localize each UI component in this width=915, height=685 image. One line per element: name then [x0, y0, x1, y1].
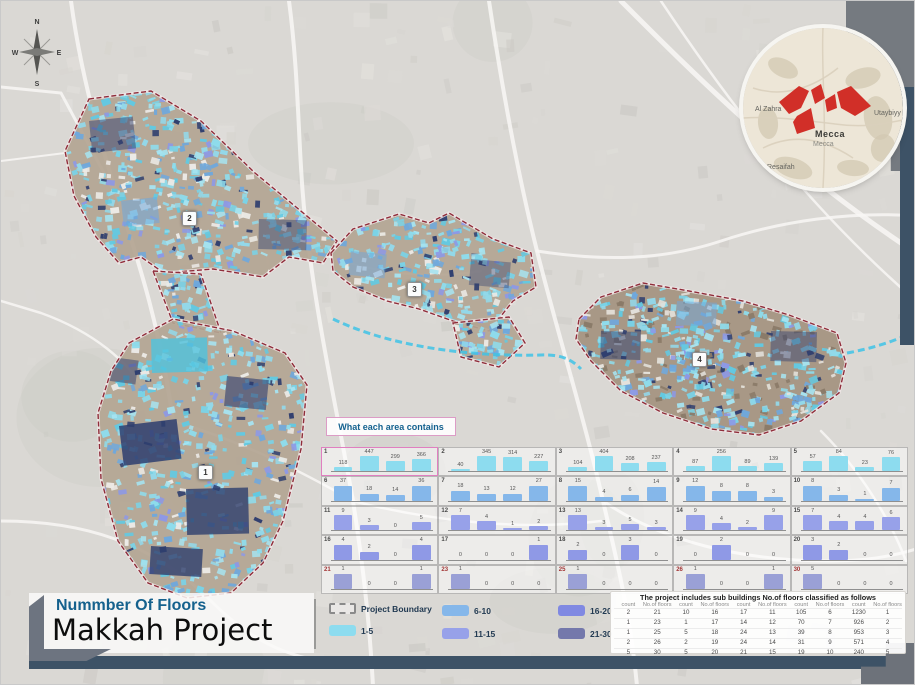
legend-item-11-15: 11-15	[442, 628, 495, 639]
summary-cell: 1	[614, 619, 643, 629]
summary-cell: 5	[873, 649, 902, 658]
summary-cell: 15	[758, 649, 787, 658]
summary-table-title: The project includes sub buildings No.of…	[614, 593, 902, 602]
legend-swatch	[558, 628, 585, 639]
floors-cell-label: 21	[324, 567, 331, 573]
summary-cell: 25	[643, 629, 672, 639]
area-bar: 12	[683, 479, 707, 501]
compass-w: W	[12, 50, 19, 57]
area-bar: 0	[644, 553, 668, 560]
area-bar: 18	[357, 487, 381, 501]
summary-cell: 8	[816, 629, 845, 639]
area-bar: 76	[879, 451, 903, 472]
area-bar: 89	[735, 460, 759, 472]
legend: Project Boundary 1-56-1011-1516-2021-30	[329, 601, 607, 651]
area-bar: 6	[879, 511, 903, 531]
area-bar: 14	[383, 488, 407, 501]
area-bar: 87	[683, 460, 707, 472]
floors-cell-label: 9	[676, 478, 679, 484]
map-poster: N S W E Al Zahra Mecca Mecca Resaifah Ut…	[0, 0, 915, 685]
title-block: Nummber Of Floors Makkah Project	[29, 593, 314, 653]
area-bar: 366	[409, 453, 433, 472]
area-bar: 2	[357, 545, 381, 560]
floors-cell-19: 190200	[673, 535, 790, 564]
floors-cell-6: 637181436	[321, 476, 438, 505]
floors-cell-30: 305000	[791, 565, 908, 594]
area-bar: 0	[644, 582, 668, 589]
legend-label: 16-20	[590, 606, 612, 616]
floors-cell-2: 240345314227	[438, 447, 555, 476]
area-bar: 0	[475, 582, 499, 589]
summary-col-header: No.of floors	[873, 602, 902, 609]
area-bar: 345	[475, 450, 499, 472]
area-bar: 104	[566, 461, 590, 472]
area-bar: 0	[357, 582, 381, 589]
area-bar: 0	[383, 582, 407, 589]
legend-item-21-30: 21-30	[558, 628, 612, 639]
area-bar: 40	[448, 463, 472, 472]
area-bar: 0	[383, 553, 407, 560]
summary-cell: 571	[844, 639, 873, 649]
area-bar: 3	[592, 521, 616, 531]
floors-cell-label: 18	[559, 537, 566, 543]
area-bar: 1	[331, 567, 355, 589]
inset-label-utaybiyyah: Utaybiyy	[874, 110, 901, 117]
summary-cell: 18	[700, 629, 729, 639]
floors-cell-15: 157446	[791, 506, 908, 535]
summary-cell: 16	[700, 609, 729, 619]
summary-cell: 20	[700, 649, 729, 658]
area-bar: 7	[801, 509, 825, 531]
legend-swatch	[329, 625, 356, 636]
floors-cell-label: 7	[441, 478, 444, 484]
area-bar: 139	[762, 457, 786, 472]
summary-cell: 17	[700, 619, 729, 629]
inset-label-al-zahra: Al Zahra	[755, 106, 781, 113]
floors-cell-label: 14	[676, 508, 683, 514]
compass-n: N	[34, 19, 39, 26]
summary-cell: 14	[729, 619, 758, 629]
floors-cell-label: 10	[794, 478, 801, 484]
floors-cell-8: 8154614	[556, 476, 673, 505]
floors-cell-17: 170001	[438, 535, 555, 564]
compass-needle-ew	[19, 48, 55, 56]
area-bar: 4	[853, 515, 877, 531]
floors-cell-label: 4	[676, 449, 679, 455]
area-bar: 2	[566, 543, 590, 560]
area-bar: 36	[409, 479, 433, 501]
area-bar: 2	[735, 521, 759, 531]
summary-col-header: No.of floors	[643, 602, 672, 609]
area-bar: 23	[853, 461, 877, 472]
area-bar: 0	[618, 582, 642, 589]
summary-table-panel: The project includes sub buildings No.of…	[610, 591, 906, 654]
area-bar: 0	[383, 524, 407, 531]
area-bar: 4	[709, 517, 733, 531]
area-bar: 1	[683, 567, 707, 589]
legend-label: 11-15	[474, 629, 495, 639]
summary-cell: 1230	[844, 609, 873, 619]
summary-cell: 5	[672, 629, 701, 639]
summary-row: 530520211519102405	[614, 649, 902, 658]
floors-cell-label: 12	[441, 508, 448, 514]
area-bar: 1	[566, 567, 590, 589]
floors-cell-16: 164204	[321, 535, 438, 564]
floors-cell-5: 557842376	[791, 447, 908, 476]
summary-cell: 1	[873, 609, 902, 619]
summary-cell: 19	[700, 639, 729, 649]
summary-cell: 23	[643, 619, 672, 629]
area-bar: 0	[592, 553, 616, 560]
summary-cell: 10	[672, 609, 701, 619]
inset-label-resaifah: Resaifah	[767, 164, 795, 171]
area-bar: 0	[475, 553, 499, 560]
floors-cell-9: 912883	[673, 476, 790, 505]
legend-item-16-20: 16-20	[558, 605, 612, 616]
area-bar: 4	[409, 538, 433, 560]
summary-cell: 953	[844, 629, 873, 639]
area-bar: 57	[801, 455, 825, 472]
area-bar: 2	[827, 543, 851, 560]
floors-cell-25: 251000	[556, 565, 673, 594]
summary-row: 22110161711105612301	[614, 609, 902, 619]
summary-cell: 5	[614, 649, 643, 658]
area-bar: 13	[475, 487, 499, 501]
area-bar: 0	[501, 553, 525, 560]
summary-cell: 21	[643, 609, 672, 619]
legend-swatch	[442, 605, 469, 616]
summary-cell: 30	[643, 649, 672, 658]
floors-cell-label: 5	[794, 449, 797, 455]
legend-label: 6-10	[474, 606, 491, 616]
floors-cell-label: 17	[441, 537, 448, 543]
summary-cell: 14	[758, 639, 787, 649]
area-bar: 1	[501, 522, 525, 531]
floors-chart-grid: 1118447299366240345314227310440420823748…	[321, 447, 908, 594]
area-bar: 0	[827, 582, 851, 589]
floors-cell-11: 119305	[321, 506, 438, 535]
area-bar: 8	[801, 479, 825, 501]
floors-cell-label: 6	[324, 478, 327, 484]
area-bar: 18	[448, 484, 472, 501]
floors-cell-label: 3	[559, 449, 562, 455]
summary-cell: 105	[787, 609, 816, 619]
locator-inset-map: Al Zahra Mecca Mecca Resaifah Utaybiyy	[743, 28, 903, 188]
summary-cell: 26	[643, 639, 672, 649]
summary-cell: 1	[614, 629, 643, 639]
legend-label: 21-30	[590, 629, 612, 639]
area-bar: 4	[331, 538, 355, 560]
poster-title: Makkah Project	[52, 613, 272, 647]
floors-cell-label: 23	[441, 567, 448, 573]
floors-cell-label: 19	[676, 537, 683, 543]
area-bar: 15	[566, 479, 590, 501]
summary-cell: 6	[816, 609, 845, 619]
summary-cell: 12	[758, 619, 787, 629]
area-bar: 1	[853, 492, 877, 501]
area-bar: 256	[709, 450, 733, 472]
legend-item-6-10: 6-10	[442, 605, 491, 616]
floors-cell-label: 11	[324, 508, 330, 514]
floors-cell-label: 26	[676, 567, 683, 573]
summary-cell: 19	[787, 649, 816, 658]
summary-col-header: No.of floors	[758, 602, 787, 609]
area-bar: 3	[357, 519, 381, 531]
area-bar: 0	[592, 582, 616, 589]
area-bar: 0	[709, 582, 733, 589]
summary-cell: 2	[614, 609, 643, 619]
area-badge-3: 3	[407, 282, 422, 297]
area-bar: 9	[762, 509, 786, 531]
frame-bar-right	[900, 87, 914, 345]
area-bar: 6	[618, 488, 642, 501]
area-bar: 8	[709, 484, 733, 501]
summary-cell: 2	[672, 639, 701, 649]
area-bar: 3	[618, 538, 642, 560]
area-bar: 447	[357, 450, 381, 472]
summary-cell: 7	[816, 619, 845, 629]
summary-cell: 24	[729, 629, 758, 639]
charts-panel-heading: What each area contains	[326, 417, 456, 436]
summary-cell: 21	[729, 649, 758, 658]
area-bar: 3	[762, 490, 786, 501]
area-bar: 404	[592, 450, 616, 472]
area-bar: 314	[501, 451, 525, 472]
floors-cell-10: 108317	[791, 476, 908, 505]
area-bar: 37	[331, 479, 355, 501]
area-bar: 0	[501, 582, 525, 589]
area-bar: 5	[618, 518, 642, 531]
area-bar: 3	[827, 488, 851, 501]
floors-cell-label: 15	[794, 508, 801, 514]
area-bar: 0	[527, 582, 551, 589]
floors-cell-label: 16	[324, 537, 331, 543]
summary-row: 22621924143195714	[614, 639, 902, 649]
area-bar: 3	[801, 538, 825, 560]
area-bar: 3	[644, 521, 668, 531]
summary-cell: 9	[816, 639, 845, 649]
summary-table: countNo.of floorscountNo.of floorscountN…	[614, 602, 902, 658]
legend-divider	[314, 599, 316, 649]
area-bar: 0	[735, 582, 759, 589]
area-bar: 4	[827, 515, 851, 531]
floors-cell-7: 718131227	[438, 476, 555, 505]
legend-label: 1-5	[361, 626, 373, 636]
area-badge-4: 4	[692, 352, 707, 367]
inset-label-mecca-alt: Mecca	[813, 141, 834, 148]
floors-cell-label: 8	[559, 478, 562, 484]
floors-cell-4: 48725689139	[673, 447, 790, 476]
legend-label: Project Boundary	[361, 604, 432, 614]
floors-cell-1: 1118447299366	[321, 447, 438, 476]
summary-cell: 11	[758, 609, 787, 619]
area-bar: 208	[618, 457, 642, 472]
area-bar: 299	[383, 455, 407, 472]
summary-cell: 3	[873, 629, 902, 639]
legend-swatch	[442, 628, 469, 639]
floors-cell-20: 203200	[791, 535, 908, 564]
summary-col-header: No.of floors	[700, 602, 729, 609]
compass-rose: N S W E	[11, 13, 63, 89]
area-bar: 7	[448, 509, 472, 531]
area-bar: 5	[409, 516, 433, 531]
legend-swatch	[558, 605, 585, 616]
floors-cell-label: 13	[559, 508, 566, 514]
compass-e: E	[57, 50, 62, 57]
summary-col-header: No.of floors	[816, 602, 845, 609]
summary-cell: 17	[729, 609, 758, 619]
summary-cell: 10	[816, 649, 845, 658]
area-bar: 9	[331, 509, 355, 531]
area-bar: 1	[527, 538, 551, 560]
area-badge-2: 2	[182, 211, 197, 226]
project-boundary-swatch	[329, 603, 356, 614]
summary-cell: 13	[758, 629, 787, 639]
area-bar: 0	[879, 582, 903, 589]
area-bar: 4	[475, 515, 499, 531]
area-bar: 237	[644, 456, 668, 472]
summary-cell: 31	[787, 639, 816, 649]
floors-cell-label: 2	[441, 449, 444, 455]
floors-cell-12: 127412	[438, 506, 555, 535]
summary-cell: 5	[672, 649, 701, 658]
summary-cell: 24	[729, 639, 758, 649]
inset-label-mecca: Mecca	[815, 130, 845, 139]
area-badge-1: 1	[198, 465, 213, 480]
area-bar: 27	[527, 479, 551, 501]
floors-cell-26: 261001	[673, 565, 790, 594]
area-bar: 0	[683, 553, 707, 560]
area-bar: 227	[527, 455, 551, 472]
area-bar: 0	[735, 553, 759, 560]
area-bar: 12	[501, 487, 525, 501]
compass-s: S	[35, 81, 40, 88]
floors-cell-18: 182030	[556, 535, 673, 564]
area-bar: 7	[879, 481, 903, 501]
summary-cell: 39	[787, 629, 816, 639]
floors-cell-14: 149429	[673, 506, 790, 535]
area-bar: 5	[801, 567, 825, 589]
legend-item-1-5: 1-5	[329, 625, 373, 636]
summary-row: 12311714127079262	[614, 619, 902, 629]
summary-cell: 2	[873, 619, 902, 629]
area-bar: 14	[644, 480, 668, 501]
area-bar: 0	[448, 553, 472, 560]
summary-cell: 70	[787, 619, 816, 629]
area-bar: 1	[762, 567, 786, 589]
floors-cell-21: 211001	[321, 565, 438, 594]
area-bar: 2	[527, 520, 551, 531]
area-bar: 4	[592, 490, 616, 501]
summary-row: 12551824133989533	[614, 629, 902, 639]
area-bar: 1	[448, 567, 472, 589]
area-bar: 84	[827, 450, 851, 472]
floors-cell-13: 1313353	[556, 506, 673, 535]
area-bar: 2	[709, 538, 733, 560]
area-bar: 8	[735, 484, 759, 501]
summary-cell: 2	[614, 639, 643, 649]
floors-cell-label: 1	[324, 449, 327, 455]
floors-cell-label: 30	[794, 567, 801, 573]
floors-cell-23: 231000	[438, 565, 555, 594]
floors-cell-label: 20	[794, 537, 801, 543]
summary-cell: 926	[844, 619, 873, 629]
area-bar: 118	[331, 461, 355, 472]
summary-cell: 4	[873, 639, 902, 649]
summary-cell: 240	[844, 649, 873, 658]
area-bar: 1	[409, 567, 433, 589]
legend-item-project-boundary: Project Boundary	[329, 603, 432, 614]
summary-cell: 1	[672, 619, 701, 629]
area-bar: 0	[853, 582, 877, 589]
area-bar: 13	[566, 509, 590, 531]
area-bar: 9	[683, 509, 707, 531]
floors-cell-3: 3104404208237	[556, 447, 673, 476]
area-bar: 0	[853, 553, 877, 560]
area-bar: 0	[762, 553, 786, 560]
floors-cell-label: 25	[559, 567, 566, 573]
area-bar: 0	[879, 553, 903, 560]
